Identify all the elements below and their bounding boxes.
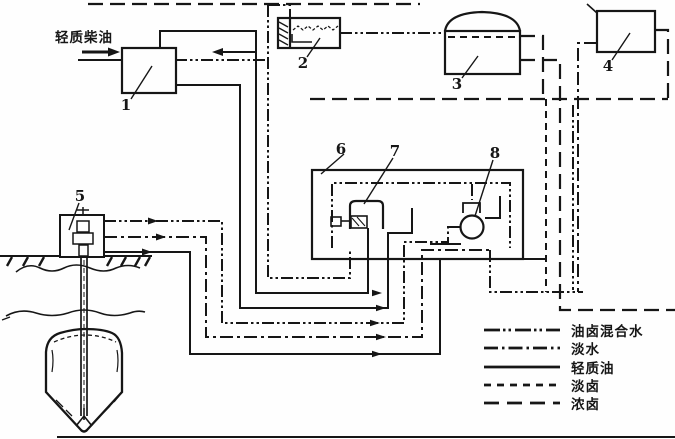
legend-line-dash-dot-dot xyxy=(482,325,562,335)
component-label-3: 3 xyxy=(452,75,462,93)
legend-line-dashed xyxy=(482,380,562,390)
pipes-weak-brine xyxy=(448,37,546,292)
inlet-stream-label: 轻质柴油 xyxy=(55,26,113,46)
component-label-6: 6 xyxy=(336,140,346,158)
legend-line-long-dash xyxy=(482,398,562,408)
separator2-shape xyxy=(278,18,340,48)
box4-shape xyxy=(587,4,655,52)
component-shapes xyxy=(122,4,655,259)
legend-item-fresh-water: 淡水 xyxy=(482,339,644,357)
legend-item-oil-brine-mix: 油卤混合水 xyxy=(482,321,644,339)
legend-item-light-oil: 轻质油 xyxy=(482,358,644,376)
legend-label: 浓卤 xyxy=(571,393,600,413)
legend-label: 淡水 xyxy=(571,338,600,358)
component-label-5: 5 xyxy=(75,187,85,205)
legend-line-dash-dot xyxy=(482,343,562,353)
component-label-1: 1 xyxy=(121,96,131,114)
component-label-8: 8 xyxy=(490,144,500,162)
legend-label: 轻质油 xyxy=(571,357,615,377)
well-and-cavern xyxy=(0,207,152,432)
line-type-legend: 油卤混合水 淡水 轻质油 淡卤 浓卤 xyxy=(482,321,644,412)
component-label-7: 7 xyxy=(390,142,400,160)
legend-label: 淡卤 xyxy=(571,375,600,395)
strata-lines xyxy=(2,265,145,320)
pump8-shape xyxy=(461,203,484,239)
legend-item-weak-brine: 淡卤 xyxy=(482,376,644,394)
wellhead5-shape xyxy=(60,207,104,257)
legend-line-solid xyxy=(482,362,562,372)
component-label-4: 4 xyxy=(603,57,613,75)
device7-shape xyxy=(331,201,383,229)
tank3-shape xyxy=(445,12,520,74)
well-bore xyxy=(76,257,92,426)
diagram-canvas: 轻质柴油 1 2 3 4 5 6 7 8 油卤混合水 淡水 轻质油 xyxy=(0,0,675,439)
legend-label: 油卤混合水 xyxy=(571,320,644,340)
component-label-2: 2 xyxy=(298,54,308,72)
legend-item-strong-brine: 浓卤 xyxy=(482,394,644,412)
